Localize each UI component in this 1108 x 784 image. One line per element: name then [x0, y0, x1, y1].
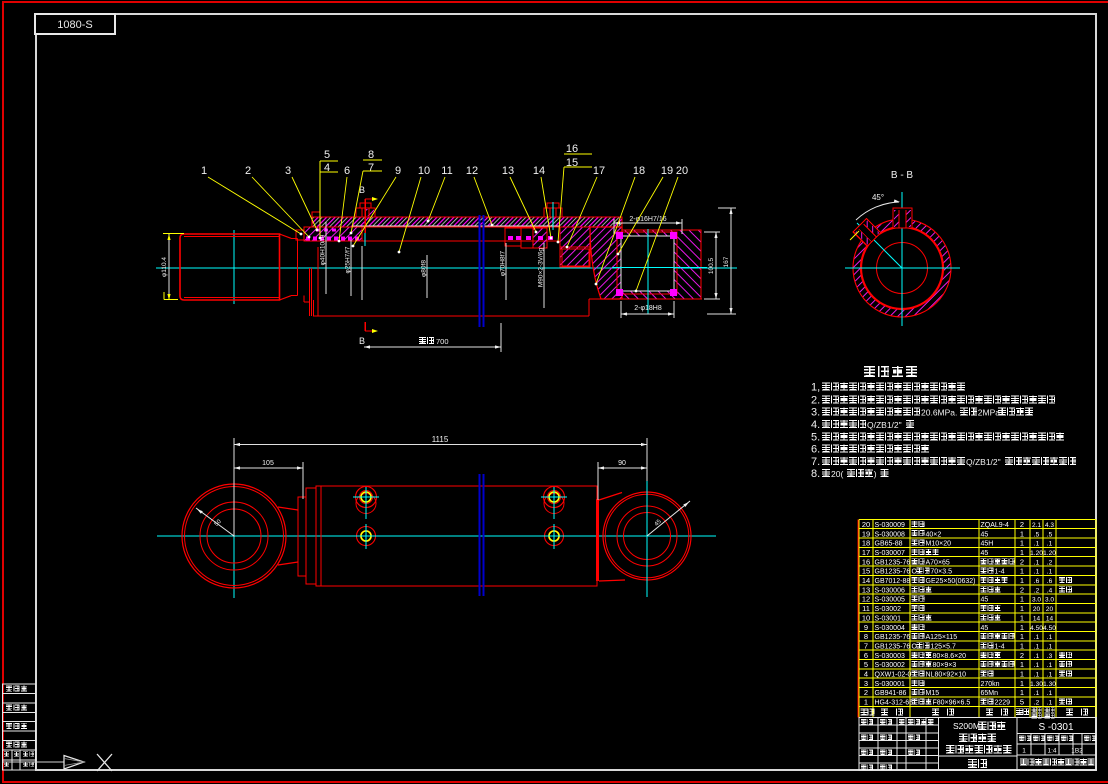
- svg-text:7: 7: [368, 162, 374, 174]
- svg-text:16: 16: [566, 143, 578, 155]
- svg-text:.1: .1: [1047, 690, 1053, 697]
- svg-text:1: 1: [1020, 632, 1024, 641]
- svg-text:5: 5: [864, 660, 868, 669]
- svg-text:3: 3: [864, 679, 868, 688]
- svg-text:B: B: [359, 336, 365, 346]
- svg-text:A125×115: A125×115: [926, 634, 958, 641]
- svg-text:Q/ZB1/2": Q/ZB1/2": [867, 420, 902, 430]
- svg-text:20: 20: [862, 520, 870, 529]
- svg-text:S-03002: S-03002: [875, 606, 902, 613]
- svg-text:45: 45: [981, 550, 989, 557]
- svg-text:1: 1: [1020, 595, 1024, 604]
- svg-text:1.20: 1.20: [1030, 550, 1043, 557]
- svg-text:10: 10: [418, 165, 430, 177]
- svg-text:2: 2: [1020, 520, 1024, 529]
- svg-text:.2: .2: [1047, 559, 1053, 566]
- svg-text:2-φ18H8: 2-φ18H8: [634, 305, 662, 312]
- svg-text:ZQAL9-4: ZQAL9-4: [981, 522, 1010, 529]
- svg-text:φ70H8f7: φ70H8f7: [500, 251, 507, 277]
- svg-text:10: 10: [862, 613, 870, 622]
- svg-text:.1: .1: [1034, 662, 1040, 669]
- svg-text:13: 13: [502, 165, 514, 177]
- svg-text:18: 18: [862, 539, 870, 548]
- svg-text:.4: .4: [1047, 587, 1053, 594]
- svg-text:4: 4: [864, 670, 868, 679]
- svg-text:.1: .1: [1047, 672, 1053, 679]
- svg-text:NL80×92×10: NL80×92×10: [926, 672, 967, 679]
- svg-text:.5: .5: [1047, 531, 1053, 538]
- svg-text:11: 11: [441, 165, 452, 177]
- svg-text:S-030007: S-030007: [875, 550, 905, 557]
- svg-text:M90×2-3V/6g: M90×2-3V/6g: [538, 248, 545, 288]
- svg-text:105: 105: [262, 460, 274, 467]
- svg-text:45: 45: [981, 625, 989, 632]
- svg-text:S -0301: S -0301: [1038, 722, 1073, 733]
- svg-text:65Mn: 65Mn: [981, 690, 999, 697]
- svg-text:12: 12: [862, 595, 870, 604]
- svg-text:.1: .1: [1034, 541, 1040, 548]
- svg-text:3.0: 3.0: [1032, 597, 1041, 604]
- svg-text:9: 9: [864, 623, 868, 632]
- svg-text:1: 1: [1022, 748, 1026, 755]
- svg-text:GB941-86: GB941-86: [875, 690, 907, 697]
- svg-text:φ80f8: φ80f8: [421, 260, 428, 277]
- svg-text:90: 90: [618, 460, 626, 467]
- svg-text:.1: .1: [1047, 700, 1053, 707]
- svg-text:20: 20: [1033, 606, 1041, 613]
- svg-text:20: 20: [1046, 606, 1054, 613]
- svg-text:45H: 45H: [981, 541, 994, 548]
- svg-text:.2: .2: [1034, 587, 1040, 594]
- svg-text:2: 2: [1020, 557, 1024, 566]
- svg-text:20(: 20(: [831, 469, 843, 479]
- svg-text:φ25H7/f7: φ25H7/f7: [345, 246, 352, 273]
- svg-text:20: 20: [676, 165, 688, 177]
- svg-text:QXW1-02-0: QXW1-02-0: [875, 672, 912, 679]
- svg-text:S-03001: S-03001: [875, 615, 902, 622]
- svg-text:3.0: 3.0: [1045, 597, 1054, 604]
- svg-text:125×5.7: 125×5.7: [930, 643, 956, 650]
- svg-text:6.: 6.: [811, 444, 820, 456]
- svg-text:4.: 4.: [811, 419, 820, 431]
- svg-text:14: 14: [1033, 615, 1041, 622]
- svg-text:4.50: 4.50: [1043, 625, 1056, 632]
- svg-text:1: 1: [1020, 679, 1024, 688]
- svg-text:.1: .1: [1034, 569, 1040, 576]
- svg-text:19: 19: [661, 165, 673, 177]
- svg-text:5: 5: [1020, 698, 1024, 707]
- svg-text:φ110.4: φ110.4: [161, 257, 168, 277]
- svg-text:S-030001: S-030001: [875, 681, 905, 688]
- svg-text:.1: .1: [1034, 672, 1040, 679]
- svg-text:19: 19: [862, 529, 870, 538]
- svg-text:1: 1: [1020, 567, 1024, 576]
- svg-text:F80×96×6.5: F80×96×6.5: [933, 700, 971, 707]
- svg-text:9: 9: [395, 165, 401, 177]
- svg-text:3.: 3.: [811, 407, 820, 419]
- svg-text:.1: .1: [1047, 643, 1053, 650]
- svg-text:.1: .1: [1034, 634, 1040, 641]
- svg-text:7.: 7.: [811, 456, 820, 468]
- svg-text:167: 167: [723, 256, 730, 267]
- svg-text:S-030005: S-030005: [875, 597, 905, 604]
- svg-text:4.50: 4.50: [1030, 625, 1043, 632]
- svg-text:1: 1: [1020, 576, 1024, 585]
- svg-text:S-030004: S-030004: [875, 625, 905, 632]
- svg-text:1: 1: [1020, 529, 1024, 538]
- svg-text:2229: 2229: [995, 700, 1011, 707]
- svg-text:2.: 2.: [811, 395, 820, 407]
- svg-text:1: 1: [864, 698, 868, 707]
- svg-text:1: 1: [201, 165, 207, 177]
- svg-text:1: 1: [1020, 641, 1024, 650]
- svg-text:17: 17: [862, 548, 870, 557]
- svg-text:S-030008: S-030008: [875, 531, 905, 538]
- svg-text:14: 14: [533, 165, 545, 177]
- svg-text:S-030003: S-030003: [875, 653, 905, 660]
- svg-text:18: 18: [633, 165, 645, 177]
- svg-text:12: 12: [466, 165, 478, 177]
- svg-text:.1: .1: [1047, 634, 1053, 641]
- svg-text:1: 1: [1020, 623, 1024, 632]
- svg-text:S-030002: S-030002: [875, 662, 905, 669]
- svg-text:14: 14: [862, 576, 870, 585]
- svg-text:.1: .1: [1047, 662, 1053, 669]
- svg-text:40×2: 40×2: [926, 531, 942, 538]
- svg-text:1: 1: [1020, 613, 1024, 622]
- svg-text:GB65-88: GB65-88: [875, 541, 903, 548]
- svg-text:2: 2: [245, 165, 251, 177]
- svg-text:.1: .1: [1034, 653, 1040, 660]
- svg-text:100.5: 100.5: [708, 257, 715, 274]
- svg-text:45: 45: [981, 531, 989, 538]
- svg-text:8: 8: [368, 149, 374, 161]
- svg-text:GB7012-88: GB7012-88: [875, 578, 911, 585]
- svg-text:6: 6: [864, 651, 868, 660]
- svg-text:5: 5: [324, 149, 330, 161]
- svg-text:700: 700: [436, 337, 449, 346]
- svg-text:A70×65: A70×65: [926, 559, 950, 566]
- svg-text:2.1: 2.1: [1032, 522, 1041, 529]
- svg-text:1: 1: [1020, 660, 1024, 669]
- svg-text:4.3: 4.3: [1045, 522, 1054, 529]
- svg-text:2: 2: [864, 688, 868, 697]
- svg-text:1.20: 1.20: [1043, 550, 1056, 557]
- svg-text:13: 13: [862, 585, 870, 594]
- svg-text:GB1235-76: GB1235-76: [875, 569, 911, 576]
- svg-text:Q/ZB1/2": Q/ZB1/2": [966, 457, 1001, 467]
- svg-text:.1: .1: [1034, 690, 1040, 697]
- svg-text:45: 45: [981, 597, 989, 604]
- svg-text:S-030009: S-030009: [875, 522, 905, 529]
- svg-text:.5: .5: [1034, 531, 1040, 538]
- svg-text:45°: 45°: [872, 193, 884, 202]
- svg-text:1:4: 1:4: [1047, 748, 1056, 755]
- svg-text:.1: .1: [1047, 541, 1053, 548]
- svg-text:GE25×50(0632): GE25×50(0632): [926, 578, 976, 585]
- svg-text:1: 1: [1020, 604, 1024, 613]
- svg-text:1: 1: [1020, 548, 1024, 557]
- svg-text:8: 8: [864, 632, 868, 641]
- svg-text:15: 15: [862, 567, 870, 576]
- svg-text:7: 7: [864, 641, 868, 650]
- svg-text:2: 2: [1020, 651, 1024, 660]
- svg-text:.1: .1: [1047, 569, 1053, 576]
- svg-text:M15: M15: [926, 690, 940, 697]
- svg-text:.3: .3: [1047, 653, 1053, 660]
- svg-text:8.: 8.: [811, 468, 820, 480]
- svg-text:1-4: 1-4: [995, 569, 1005, 576]
- svg-text:5.: 5.: [811, 432, 820, 444]
- svg-text:.6: .6: [1047, 578, 1053, 585]
- svg-text:11: 11: [862, 604, 870, 613]
- svg-text:16: 16: [862, 557, 870, 566]
- svg-text:80×9×3: 80×9×3: [933, 662, 957, 669]
- svg-text:1-4: 1-4: [995, 643, 1005, 650]
- svg-text:6: 6: [344, 165, 350, 177]
- svg-text:1: 1: [1020, 688, 1024, 697]
- svg-text:1: 1: [1020, 539, 1024, 548]
- svg-text:.2: .2: [1034, 700, 1040, 707]
- svg-text:1.30: 1.30: [1043, 681, 1056, 688]
- svg-text:HG4-312-66: HG4-312-66: [875, 700, 914, 707]
- svg-text:.6: .6: [1034, 578, 1040, 585]
- svg-text:B - B: B - B: [891, 170, 914, 181]
- svg-text:1B2: 1B2: [1071, 748, 1083, 755]
- svg-text:.1: .1: [1034, 643, 1040, 650]
- svg-text:80×8.6×20: 80×8.6×20: [933, 653, 967, 660]
- svg-text:M10×20: M10×20: [926, 541, 952, 548]
- svg-text:GB1235-76: GB1235-76: [875, 634, 911, 641]
- svg-text:270kn: 270kn: [981, 681, 1000, 688]
- svg-text:1: 1: [1020, 670, 1024, 679]
- svg-text:20.6MPa.: 20.6MPa.: [921, 408, 957, 418]
- svg-text:3: 3: [285, 165, 291, 177]
- svg-text:): ): [874, 469, 877, 479]
- svg-text:70×3.5: 70×3.5: [930, 569, 952, 576]
- svg-text:1,: 1,: [811, 382, 820, 394]
- svg-text:S200M: S200M: [953, 721, 980, 731]
- svg-text:17: 17: [593, 165, 605, 177]
- svg-text:1080-S: 1080-S: [57, 19, 92, 31]
- svg-text:S-030006: S-030006: [875, 587, 905, 594]
- svg-text:14: 14: [1046, 615, 1054, 622]
- svg-text:GB1235-76: GB1235-76: [875, 559, 911, 566]
- svg-text:1115: 1115: [432, 435, 449, 444]
- svg-text:GB1235-76: GB1235-76: [875, 643, 911, 650]
- svg-text:2: 2: [1020, 585, 1024, 594]
- svg-text:2MPa: 2MPa: [978, 408, 1000, 418]
- svg-text:1.30: 1.30: [1030, 681, 1043, 688]
- svg-text:.1: .1: [1034, 559, 1040, 566]
